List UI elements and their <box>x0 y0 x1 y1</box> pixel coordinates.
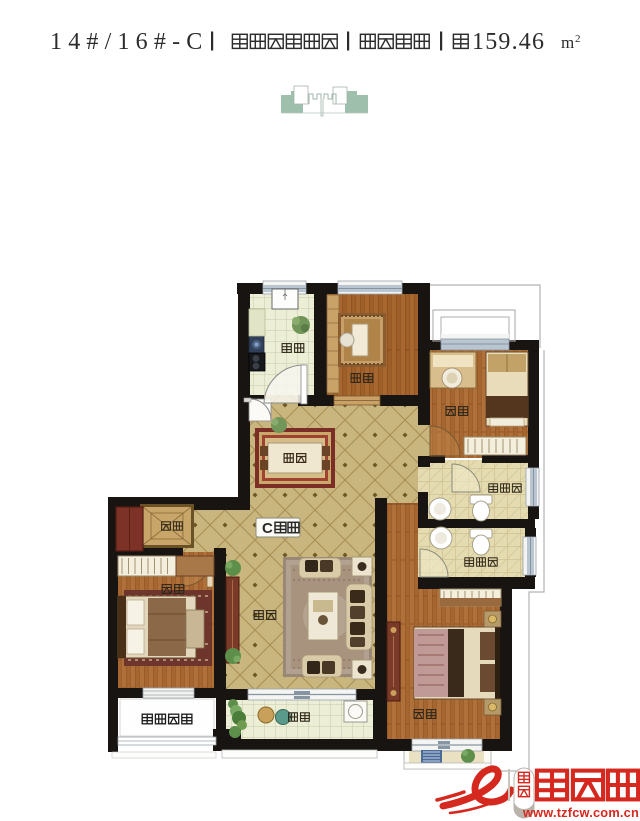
svg-text:14#/16#-C: 14#/16#-C <box>50 29 208 55</box>
svg-text:www.tzfcw.com.cn: www.tzfcw.com.cn <box>522 805 639 820</box>
svg-text:m: m <box>561 33 574 52</box>
svg-text:2: 2 <box>575 33 581 45</box>
svg-text:159.46: 159.46 <box>472 29 545 55</box>
svg-text:C: C <box>262 520 273 537</box>
